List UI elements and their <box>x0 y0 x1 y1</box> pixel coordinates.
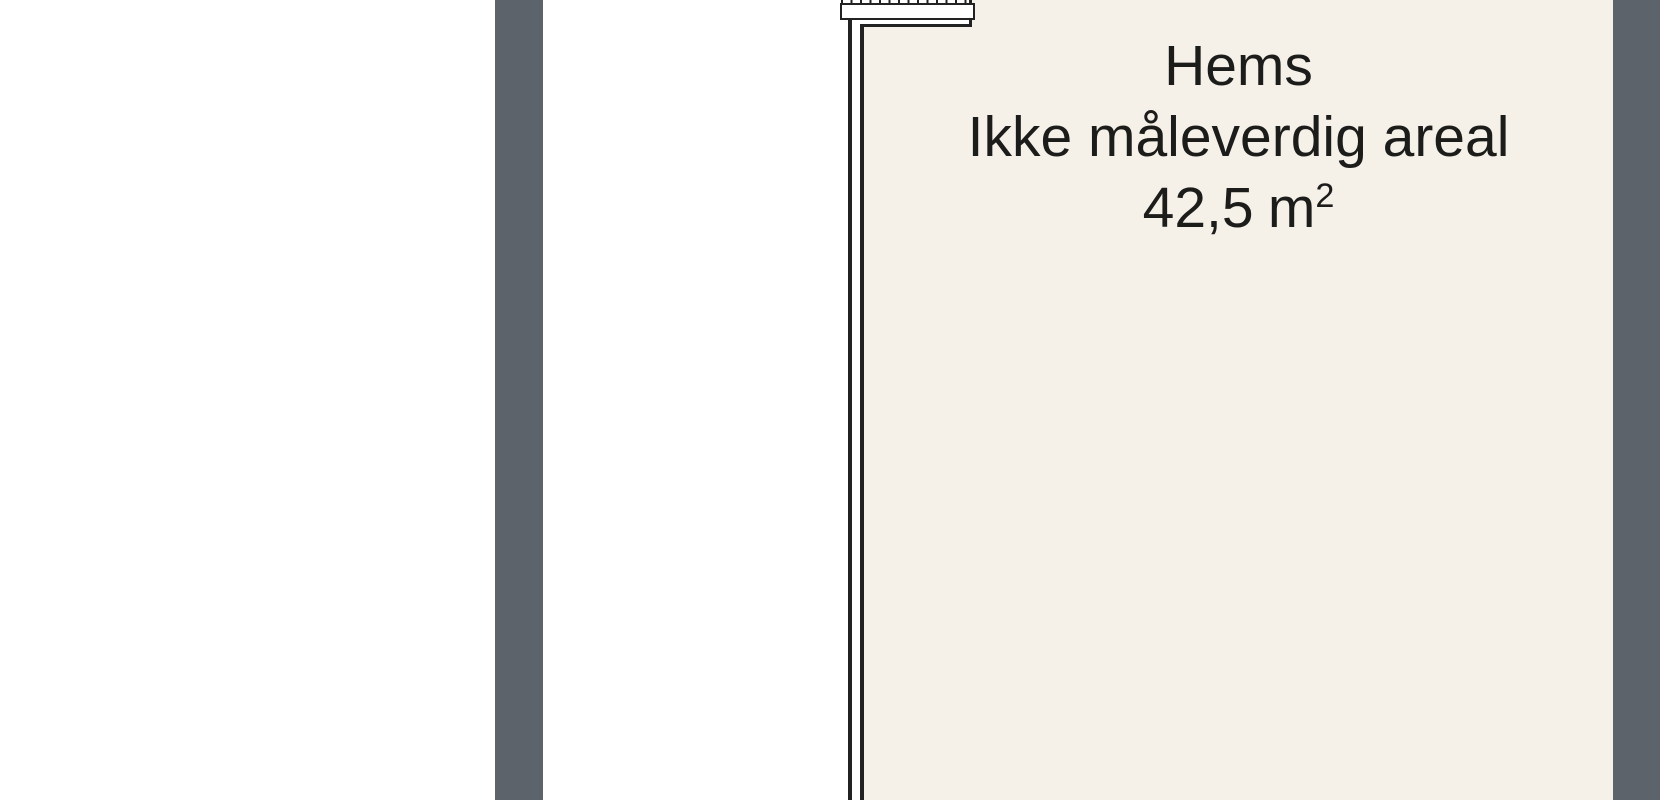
wall-right-gray <box>1613 0 1660 800</box>
room-area-unit: m <box>1268 176 1315 240</box>
room-area-exponent: 2 <box>1315 177 1334 215</box>
wall-left-gray <box>495 0 543 800</box>
room-wall-outer-line <box>848 18 852 800</box>
room-area-value: 42,5 <box>1143 176 1254 240</box>
loft-ladder-icon <box>840 3 975 20</box>
room-name: Hems <box>864 31 1613 102</box>
room-area: 42,5m2 <box>864 173 1613 244</box>
floor-plan: Hems Ikke måleverdig areal 42,5m2 <box>0 0 1670 800</box>
ladder-ticks-icon <box>841 0 974 5</box>
room-label-block: Hems Ikke måleverdig areal 42,5m2 <box>864 31 1613 244</box>
room-note: Ikke måleverdig areal <box>864 102 1613 173</box>
